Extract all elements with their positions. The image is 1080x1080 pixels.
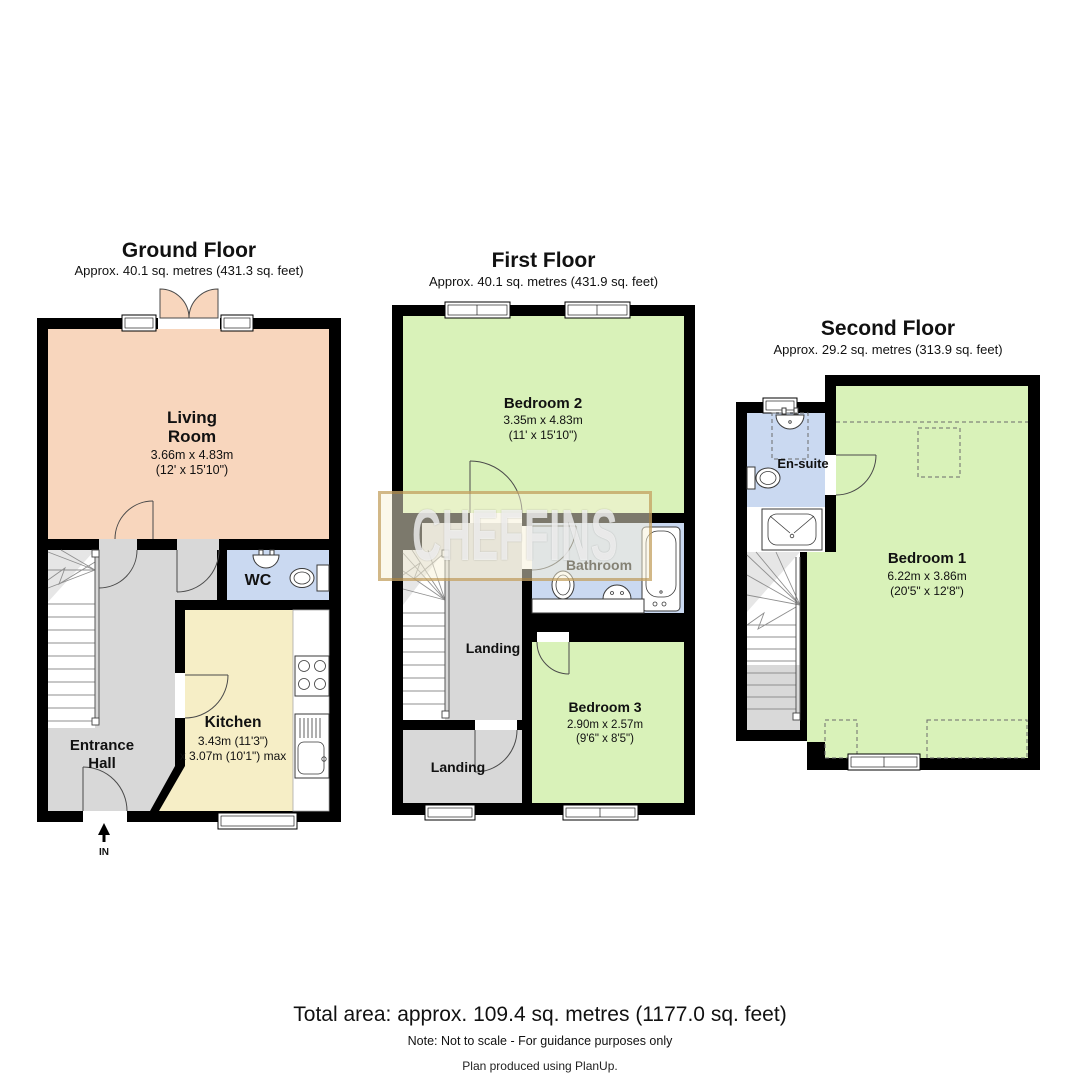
ground-stairs: [48, 550, 99, 728]
landing-window: [425, 805, 475, 820]
wc-opening: [177, 539, 219, 550]
ensuite-label: En-suite: [777, 456, 828, 471]
bedroom2-window-left: [445, 302, 510, 318]
bedroom1-dims-1: 6.22m x 3.86m: [887, 569, 966, 583]
total-area-text: Total area: approx. 109.4 sq. metres (11…: [0, 1003, 1080, 1027]
living-hall-opening: [99, 539, 137, 550]
front-door-opening: [83, 811, 127, 822]
second-floor-stairs: [747, 552, 800, 730]
bathroom-vanity: [532, 599, 644, 613]
ensuite-toilet-icon: [747, 467, 780, 489]
living-room-window-left: [122, 315, 156, 331]
kitchen-dims-1: 3.43m (11'3"): [198, 734, 268, 748]
living-room-label-2: Room: [168, 427, 216, 446]
living-room-window-right: [221, 315, 253, 331]
bedroom3-opening: [537, 632, 569, 642]
bedroom3-label: Bedroom 3: [568, 699, 641, 715]
hob-icon: [295, 656, 329, 696]
living-room-dims-2: (12' x 15'10"): [156, 463, 228, 477]
second-floor-title: Second Floor: [736, 317, 1040, 341]
kitchen-label: Kitchen: [205, 714, 262, 731]
bedroom2-label: Bedroom 2: [504, 395, 582, 412]
bedroom1-label: Bedroom 1: [888, 550, 966, 567]
patio-door-opening: [158, 318, 220, 329]
living-room-label-1: Living: [167, 408, 217, 427]
producer-text: Plan produced using PlanUp.: [0, 1059, 1080, 1073]
landing-upper-label: Landing: [466, 640, 520, 656]
kitchen-dims-2: x 3.07m (10'1") max: [180, 749, 287, 763]
bedroom2-dims-1: 3.35m x 4.83m: [503, 413, 582, 427]
scale-note-text: Note: Not to scale - For guidance purpos…: [0, 1034, 1080, 1048]
entrance-in-label: IN: [99, 847, 109, 858]
ground-floor-title: Ground Floor: [37, 239, 341, 263]
bedroom1-floor-strip: [807, 552, 836, 758]
shower-icon: [762, 509, 822, 550]
bedroom2-dims-2: (11' x 15'10"): [509, 428, 578, 442]
bedroom1-dims-2: (20'5" x 12'8"): [890, 584, 964, 598]
landing-lower-label: Landing: [431, 759, 485, 775]
ground-floor-subtitle: Approx. 40.1 sq. metres (431.3 sq. feet): [17, 263, 361, 278]
living-room-dims-1: 3.66m x 4.83m: [151, 448, 234, 462]
entrance-hall-label-2: Hall: [88, 755, 116, 772]
bedroom1-window: [848, 754, 920, 770]
ensuite-window: [763, 398, 797, 413]
kitchen-opening: [175, 673, 185, 718]
landing-opening: [475, 720, 517, 730]
kitchen-sink-icon: [295, 714, 329, 778]
bedroom3-window: [563, 805, 638, 820]
ground-floor-plan: IN Living Room 3.66m x 4.83m (12' x 15'1…: [37, 283, 341, 858]
french-doors: [160, 289, 218, 318]
kitchen-counter: [293, 610, 329, 811]
bedroom2-window-right: [565, 302, 630, 318]
second-floor-subtitle: Approx. 29.2 sq. metres (313.9 sq. feet): [716, 342, 1060, 357]
bedroom3-dims-1: 2.90m x 2.57m: [567, 719, 643, 731]
watermark-banner: CHEFFINS: [378, 491, 652, 581]
second-floor-plan: En-suite Bedroom 1 6.22m x 3.86m (20'5" …: [736, 375, 1040, 775]
watermark-text: CHEFFINS: [412, 494, 618, 578]
floorplan-page: Ground Floor Approx. 40.1 sq. metres (43…: [0, 0, 1080, 1080]
entrance-arrow-icon: [98, 823, 110, 842]
bedroom3-dims-2: (9'6" x 8'5"): [576, 733, 634, 745]
second-wall-corner: [807, 742, 825, 770]
wc-label: WC: [245, 572, 272, 589]
kitchen-window: [218, 813, 297, 829]
entrance-hall-label-1: Entrance: [70, 737, 134, 754]
